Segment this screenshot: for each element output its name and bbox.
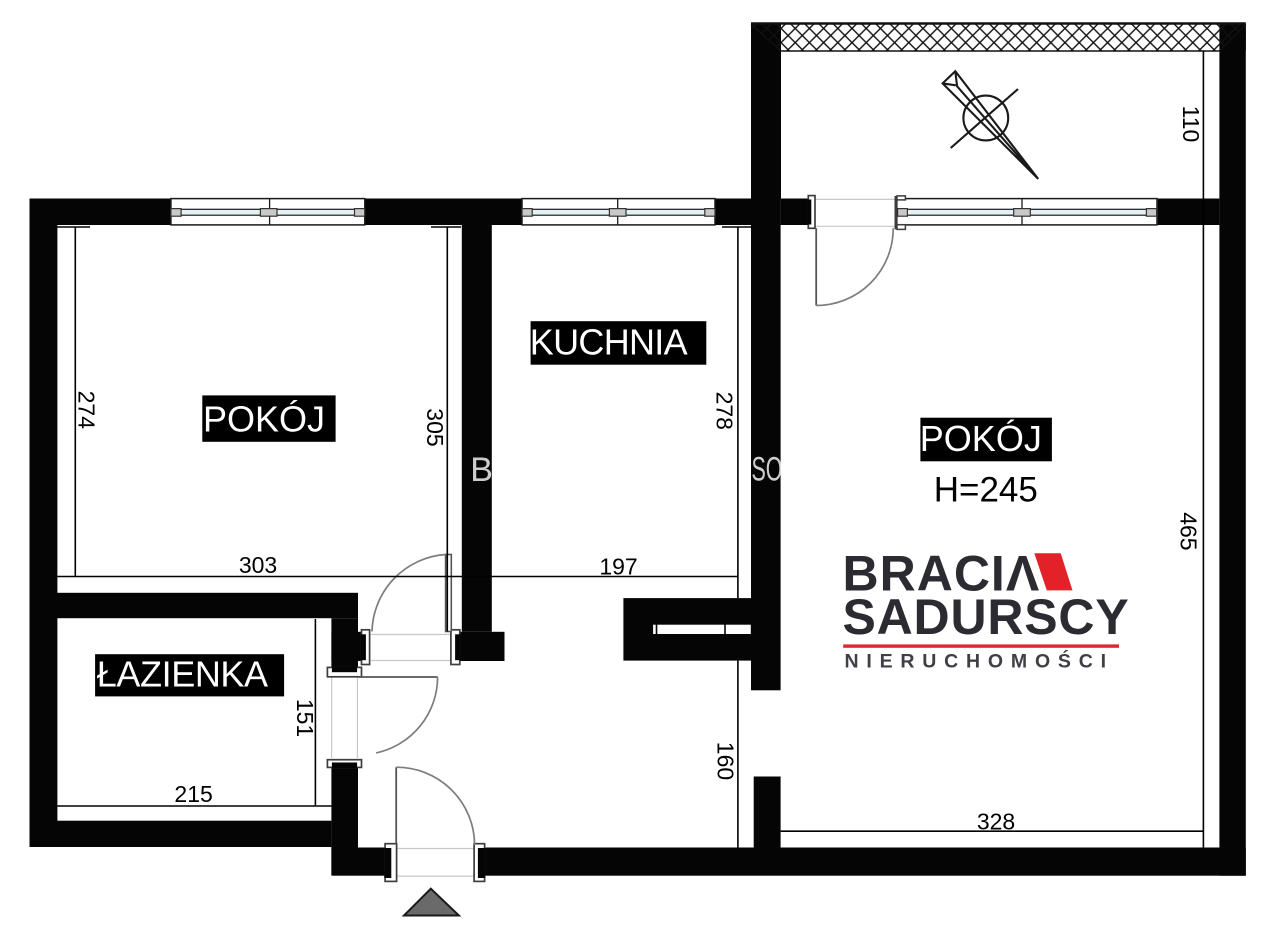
svg-text:465: 465 bbox=[1176, 512, 1202, 550]
svg-text:SADURSCY: SADURSCY bbox=[843, 589, 1130, 645]
svg-text:278: 278 bbox=[712, 392, 738, 430]
svg-text:KUCHNIA: KUCHNIA bbox=[530, 322, 688, 363]
svg-text:NIERUCHOMOŚCI: NIERUCHOMOŚCI bbox=[845, 649, 1114, 673]
svg-text:328: 328 bbox=[977, 809, 1015, 835]
svg-text:SO: SO bbox=[752, 451, 783, 489]
svg-text:ŁAZIENKA: ŁAZIENKA bbox=[97, 653, 268, 694]
svg-text:110: 110 bbox=[1178, 106, 1204, 143]
svg-text:POKÓJ: POKÓJ bbox=[203, 399, 325, 440]
svg-text:305: 305 bbox=[422, 408, 448, 446]
svg-text:197: 197 bbox=[599, 554, 637, 580]
svg-text:151: 151 bbox=[292, 699, 318, 737]
svg-text:H=245: H=245 bbox=[934, 471, 1038, 510]
svg-text:B: B bbox=[470, 451, 493, 489]
svg-text:215: 215 bbox=[174, 781, 212, 807]
svg-text:POKÓJ: POKÓJ bbox=[920, 418, 1042, 459]
svg-text:274: 274 bbox=[74, 391, 100, 430]
svg-text:303: 303 bbox=[239, 552, 277, 578]
svg-text:160: 160 bbox=[712, 742, 738, 780]
